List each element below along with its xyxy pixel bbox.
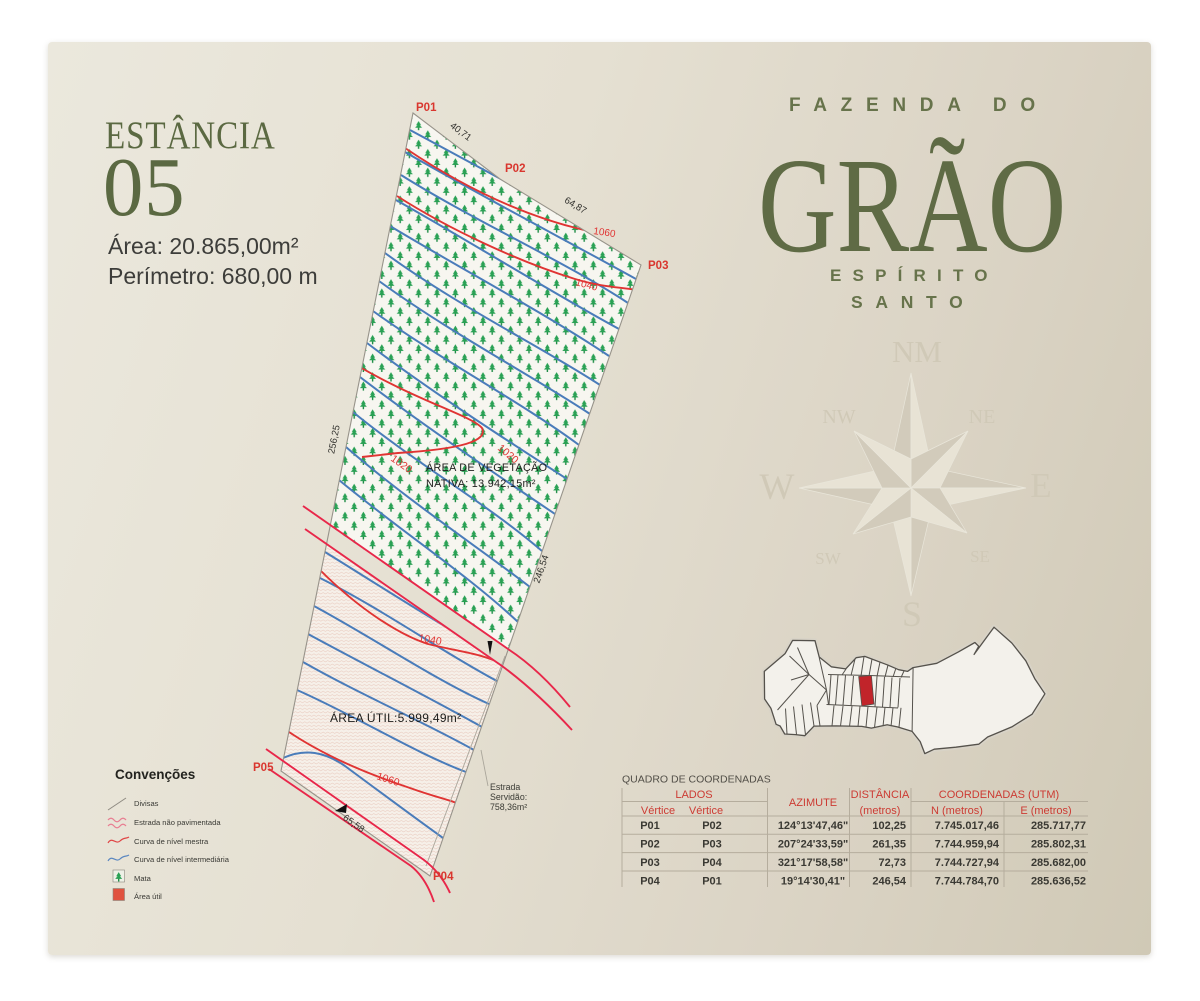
svg-text:P03: P03: [648, 260, 668, 272]
svg-text:285.717,77: 285.717,77: [1031, 820, 1086, 832]
svg-text:NW: NW: [822, 406, 855, 428]
svg-text:QUADRO DE COORDENADAS: QUADRO DE COORDENADAS: [622, 774, 771, 786]
svg-text:P02: P02: [640, 839, 660, 851]
svg-text:7.744.784,70: 7.744.784,70: [935, 876, 999, 888]
svg-text:P01: P01: [702, 876, 722, 888]
svg-text:P04: P04: [702, 857, 722, 869]
svg-text:P02: P02: [702, 820, 722, 832]
svg-text:P03: P03: [640, 857, 660, 869]
svg-text:207°24'33,59": 207°24'33,59": [778, 839, 848, 851]
svg-text:SW: SW: [815, 549, 841, 568]
svg-text:Estrada: Estrada: [490, 782, 520, 792]
svg-text:Vértice: Vértice: [689, 805, 723, 817]
svg-text:SE: SE: [970, 547, 990, 566]
svg-text:7.744.959,94: 7.744.959,94: [935, 839, 1000, 851]
svg-text:(metros): (metros): [860, 805, 901, 817]
svg-text:P05: P05: [253, 762, 274, 774]
svg-text:S: S: [902, 594, 922, 634]
svg-text:COORDENADAS (UTM): COORDENADAS (UTM): [939, 789, 1059, 801]
svg-text:NATIVA: 13.942,15m²: NATIVA: 13.942,15m²: [426, 478, 536, 490]
svg-text:P02: P02: [505, 163, 525, 175]
svg-text:P04: P04: [640, 876, 660, 888]
svg-text:NE: NE: [969, 406, 996, 428]
svg-text:72,73: 72,73: [878, 857, 906, 869]
svg-text:758,36m²: 758,36m²: [490, 802, 527, 812]
svg-text:7.744.727,94: 7.744.727,94: [935, 857, 1000, 869]
svg-text:W: W: [760, 467, 795, 508]
svg-text:321°17'58,58": 321°17'58,58": [778, 857, 848, 869]
svg-text:E (metros): E (metros): [1020, 805, 1071, 817]
svg-text:NM: NM: [892, 334, 942, 369]
svg-text:Servidão:: Servidão:: [490, 792, 527, 802]
svg-text:AZIMUTE: AZIMUTE: [789, 797, 837, 809]
svg-text:285.682,00: 285.682,00: [1031, 857, 1086, 869]
svg-text:246,54: 246,54: [872, 876, 907, 888]
svg-text:19°14'30,41": 19°14'30,41": [781, 876, 845, 888]
svg-text:P01: P01: [416, 102, 437, 114]
svg-text:Vértice: Vértice: [641, 805, 675, 817]
svg-text:LADOS: LADOS: [675, 789, 712, 801]
svg-text:N (metros): N (metros): [931, 805, 983, 817]
svg-text:ÁREA DE VEGETAÇÃO: ÁREA DE VEGETAÇÃO: [426, 461, 547, 474]
svg-text:P03: P03: [702, 839, 722, 851]
svg-text:ÁREA ÚTIL:5.999,49m²: ÁREA ÚTIL:5.999,49m²: [330, 710, 461, 725]
svg-text:40,71: 40,71: [448, 120, 474, 143]
svg-text:64,87: 64,87: [562, 195, 588, 217]
svg-text:256,25: 256,25: [326, 424, 342, 455]
svg-text:285.636,52: 285.636,52: [1031, 876, 1086, 888]
svg-text:DISTÂNCIA: DISTÂNCIA: [851, 788, 910, 801]
svg-text:261,35: 261,35: [872, 839, 906, 851]
svg-text:P01: P01: [640, 820, 660, 832]
svg-text:124°13'47,46": 124°13'47,46": [778, 820, 848, 832]
svg-text:P04: P04: [433, 871, 454, 883]
svg-text:E: E: [1030, 466, 1051, 505]
svg-text:102,25: 102,25: [872, 820, 906, 832]
svg-text:285.802,31: 285.802,31: [1031, 839, 1086, 851]
svg-text:7.745.017,46: 7.745.017,46: [935, 820, 999, 832]
